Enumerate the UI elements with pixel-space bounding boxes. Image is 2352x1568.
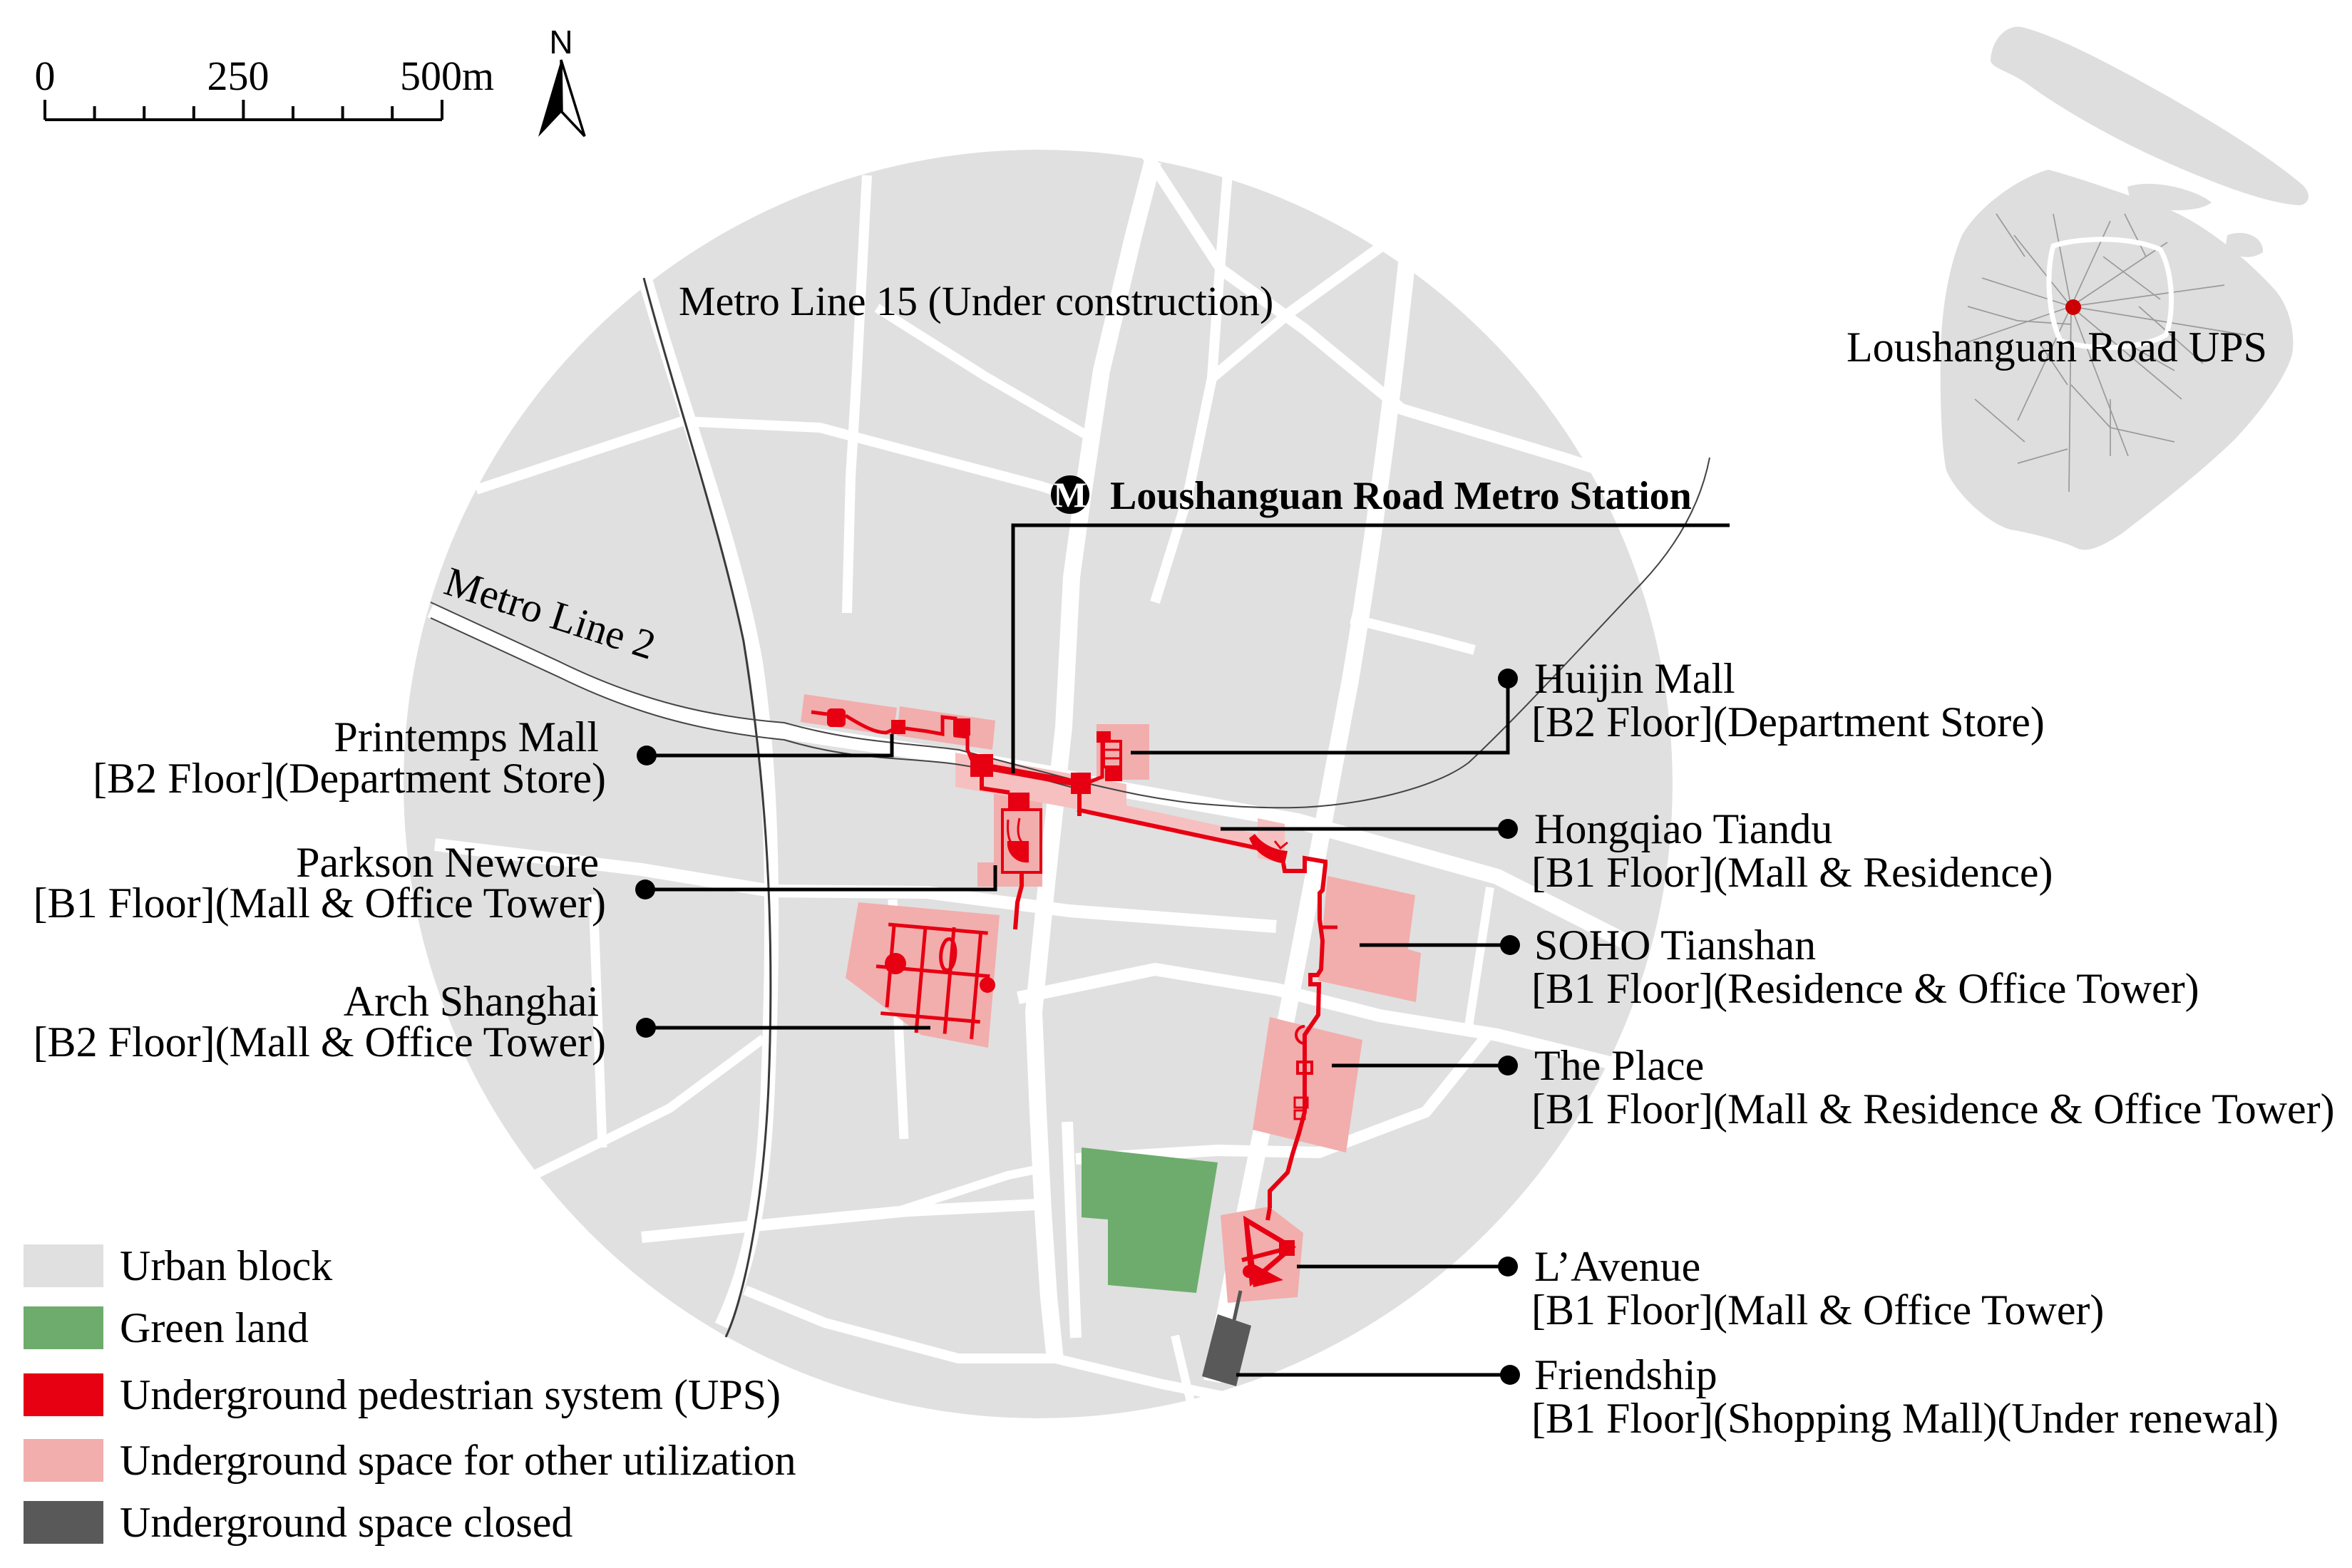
svg-text:Underground pedestrian system: Underground pedestrian system (UPS) [120,1371,781,1418]
svg-text:250: 250 [207,53,269,99]
svg-text:Green land: Green land [120,1304,309,1351]
svg-text:M: M [1053,475,1087,515]
svg-text:Loushanguan Road Metro Station: Loushanguan Road Metro Station [1110,474,1692,518]
svg-text:Underground space for other ut: Underground space for other utilization [120,1437,796,1484]
svg-text:SOHO Tianshan: SOHO Tianshan [1534,922,1816,969]
svg-text:Loushanguan Road UPS: Loushanguan Road UPS [1847,324,2267,371]
svg-text:0: 0 [35,53,56,99]
svg-text:The Place: The Place [1534,1042,1704,1089]
svg-text:N: N [549,24,572,61]
svg-text:[B2 Floor](Mall & Office Tower: [B2 Floor](Mall & Office Tower) [34,1018,606,1066]
svg-text:[B1 Floor](Mall & Office Tower: [B1 Floor](Mall & Office Tower) [34,880,606,927]
svg-text:[B2 Floor](Department Store): [B2 Floor](Department Store) [1531,698,2045,746]
svg-text:[B1 Floor](Shopping Mall)(Unde: [B1 Floor](Shopping Mall)(Under renewal) [1531,1395,2279,1442]
svg-text:Huijin Mall: Huijin Mall [1534,655,1735,702]
svg-text:[B2 Floor](Department Store): [B2 Floor](Department Store) [93,755,606,802]
svg-text:Friendship: Friendship [1534,1351,1717,1398]
svg-text:[B1 Floor](Residence & Office: [B1 Floor](Residence & Office Tower) [1531,965,2199,1012]
svg-text:Urban block: Urban block [120,1242,332,1289]
svg-text:Underground space closed: Underground space closed [120,1499,572,1546]
svg-text:Metro Line 15 (Under construct: Metro Line 15 (Under construction) [679,278,1273,324]
svg-text:L’Avenue: L’Avenue [1534,1243,1700,1290]
svg-text:500m: 500m [400,53,494,99]
svg-text:[B1 Floor](Mall & Residence): [B1 Floor](Mall & Residence) [1531,849,2053,896]
svg-text:[B1 Floor](Mall & Residence &: [B1 Floor](Mall & Residence & Office Tow… [1531,1085,2335,1133]
svg-text:Printemps Mall: Printemps Mall [334,713,599,760]
svg-text:Hongqiao Tiandu: Hongqiao Tiandu [1534,805,1832,852]
svg-text:[B1 Floor](Mall & Office Tower: [B1 Floor](Mall & Office Tower) [1531,1286,2104,1334]
